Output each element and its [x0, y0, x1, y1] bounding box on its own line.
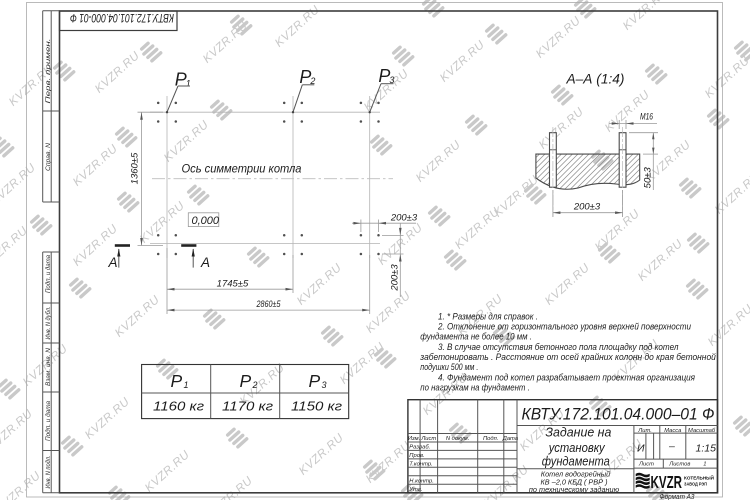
svg-text:Формат А3: Формат А3 — [660, 492, 696, 500]
svg-text:1745±5: 1745±5 — [217, 278, 249, 289]
svg-text:А: А — [108, 255, 118, 270]
svg-text:KVZR.RU: KVZR.RU — [452, 204, 502, 251]
svg-text:KVZR.RU: KVZR.RU — [161, 117, 211, 164]
svg-text:И: И — [637, 443, 645, 455]
svg-text:1170 кг: 1170 кг — [222, 399, 273, 413]
svg-text:Подп. и дата: Подп. и дата — [44, 401, 52, 441]
svg-text:KVZR.RU: KVZR.RU — [413, 137, 463, 184]
svg-text:Утв.: Утв. — [408, 487, 422, 493]
svg-text:КОТЕЛЬНЫЙ: КОТЕЛЬНЫЙ — [684, 473, 715, 481]
svg-text:P: P — [309, 371, 321, 391]
svg-text:1150 кг: 1150 кг — [291, 399, 342, 413]
svg-text:KVZR.RU: KVZR.RU — [296, 430, 346, 477]
svg-text:KVZR.RU: KVZR.RU — [0, 160, 38, 207]
svg-text:1: 1 — [703, 462, 706, 468]
svg-text:Изм.: Изм. — [408, 436, 420, 442]
svg-text:KVZR.RU: KVZR.RU — [137, 198, 187, 245]
svg-text:3. В случае отсутствия бетонн: 3. В случае отсутствия бетонного пола пл… — [438, 342, 679, 352]
svg-text:1360±5: 1360±5 — [130, 152, 141, 184]
svg-text:фундамента не более 10 мм .: фундамента не более 10 мм . — [420, 332, 532, 342]
svg-text:KVZR.RU: KVZR.RU — [542, 260, 592, 307]
svg-text:Инв. N подл.: Инв. N подл. — [44, 456, 52, 489]
svg-text:1: 1 — [184, 380, 189, 390]
svg-text:P: P — [171, 371, 183, 391]
svg-text:N докум.: N докум. — [446, 436, 469, 442]
svg-text:KVZR.RU: KVZR.RU — [536, 104, 586, 151]
svg-text:KVZR: KVZR — [651, 472, 683, 492]
svg-text:P: P — [240, 371, 252, 391]
svg-text:Перв. примен.: Перв. примен. — [45, 39, 52, 104]
svg-text:0,000: 0,000 — [192, 215, 220, 227]
svg-text:Задание на: Задание на — [545, 425, 611, 440]
svg-text:KVZR.RU: KVZR.RU — [294, 260, 344, 307]
svg-text:200±3: 200±3 — [573, 202, 601, 213]
svg-text:по техническому заданию: по техническому заданию — [529, 485, 620, 494]
svg-text:KVZR.RU: KVZR.RU — [0, 406, 35, 453]
svg-text:KVZR.RU: KVZR.RU — [702, 53, 750, 100]
svg-text:А: А — [200, 255, 210, 270]
svg-text:Лит.: Лит. — [637, 428, 652, 434]
svg-text:подушки 500 мм .: подушки 500 мм . — [420, 362, 478, 372]
svg-text:КВТУ.172.101.04.000-01 Ф: КВТУ.172.101.04.000-01 Ф — [70, 11, 174, 25]
svg-text:М16: М16 — [640, 111, 654, 122]
svg-text:4. Фундамент под котел разраб: 4. Фундамент под котел разрабатывает про… — [438, 372, 695, 382]
svg-text:KVZR.RU: KVZR.RU — [533, 13, 583, 60]
svg-text:Инв. N дубл.: Инв. N дубл. — [44, 307, 52, 340]
svg-text:KVZR.RU: KVZR.RU — [0, 468, 43, 500]
svg-text:Лист: Лист — [420, 436, 436, 442]
svg-text:2860±5: 2860±5 — [256, 299, 281, 310]
svg-text:KVZR.RU: KVZR.RU — [705, 301, 750, 348]
svg-text:фундамента: фундамента — [542, 453, 610, 468]
svg-text:KVZR.RU: KVZR.RU — [70, 141, 120, 188]
svg-text:2: 2 — [252, 380, 258, 390]
svg-text:Т.контр.: Т.контр. — [409, 462, 432, 468]
svg-text:Разраб.: Разраб. — [409, 445, 430, 451]
svg-text:ЗАВОД РЭП: ЗАВОД РЭП — [684, 482, 707, 488]
svg-text:KVZR.RU: KVZR.RU — [205, 473, 255, 500]
svg-text:Масштаб: Масштаб — [688, 428, 716, 434]
svg-text:Взам. инв. N: Взам. инв. N — [45, 348, 52, 386]
svg-text:1. * Размеры для справок .: 1. * Размеры для справок . — [438, 312, 538, 322]
svg-text:KVZR.RU: KVZR.RU — [112, 292, 162, 339]
svg-text:Подп. и дата: Подп. и дата — [44, 255, 52, 293]
svg-text:Дата: Дата — [502, 436, 519, 442]
svg-text:200±3: 200±3 — [390, 213, 418, 224]
svg-text:KVZR.RU: KVZR.RU — [363, 288, 413, 335]
svg-text:KVZR.RU: KVZR.RU — [0, 223, 30, 270]
svg-text:KVZR.RU: KVZR.RU — [272, 2, 322, 49]
svg-text:KVZR.RU: KVZR.RU — [635, 236, 685, 283]
svg-text:200±3: 200±3 — [389, 264, 400, 292]
svg-text:КВТУ.172.101.04.000–01 Ф: КВТУ.172.101.04.000–01 Ф — [522, 405, 715, 423]
svg-text:1:15: 1:15 — [696, 443, 717, 455]
svg-text:Листов: Листов — [668, 462, 690, 468]
svg-text:Н.контр.: Н.контр. — [409, 479, 434, 485]
svg-text:50±3: 50±3 — [642, 167, 653, 189]
svg-text:1: 1 — [186, 78, 191, 88]
svg-text:Масса: Масса — [664, 428, 682, 434]
svg-text:Пров.: Пров. — [409, 453, 424, 459]
svg-text:по нагрузкам на фундамент .: по нагрузкам на фундамент . — [420, 383, 530, 393]
svg-text:KVZR.RU: KVZR.RU — [142, 447, 192, 494]
svg-text:забетонировать . Расстояние от: забетонировать . Расстояние от осей край… — [419, 352, 715, 362]
svg-text:KVZR.RU: KVZR.RU — [481, 462, 531, 500]
svg-text:2. Отклонение от горизонтальн: 2. Отклонение от горизонтального уровня … — [437, 322, 691, 332]
svg-text:1160 кг: 1160 кг — [153, 399, 204, 413]
svg-text:–: – — [668, 441, 675, 453]
svg-text:KVZR.RU: KVZR.RU — [82, 394, 132, 441]
svg-text:KVZR.RU: KVZR.RU — [92, 48, 142, 95]
svg-text:А–А (1:4): А–А (1:4) — [565, 72, 624, 87]
svg-text:Лист: Лист — [638, 462, 654, 468]
svg-text:Ось симметрии котла: Ось симметрии котла — [182, 162, 302, 176]
svg-text:Подп.: Подп. — [483, 436, 498, 442]
svg-text:KVZR.RU: KVZR.RU — [437, 37, 487, 84]
svg-text:KVZR.RU: KVZR.RU — [620, 0, 670, 33]
svg-text:3: 3 — [322, 380, 327, 390]
svg-text:KVZR.RU: KVZR.RU — [337, 339, 387, 386]
svg-text:Справ. N: Справ. N — [45, 143, 52, 171]
